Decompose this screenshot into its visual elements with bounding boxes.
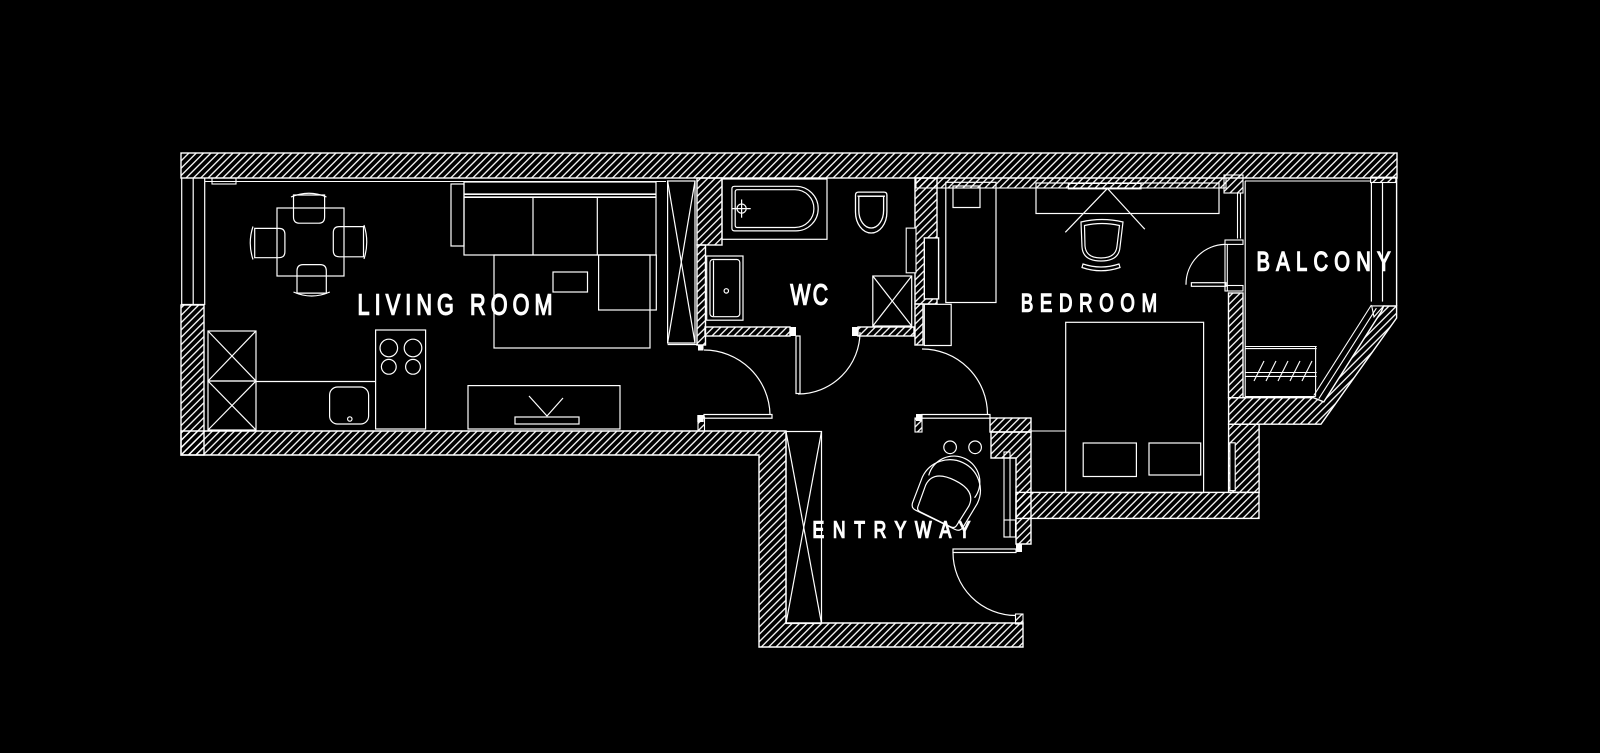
svg-text:WC: WC [790, 280, 828, 312]
svg-text:BALCONY: BALCONY [1257, 247, 1391, 278]
